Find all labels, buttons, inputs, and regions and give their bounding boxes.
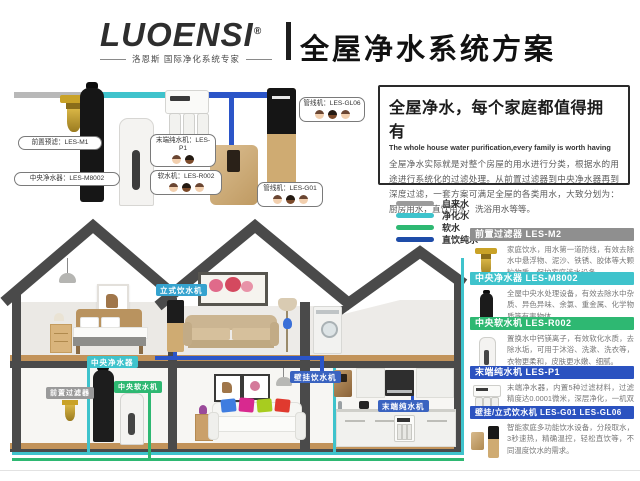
bed-blanket — [73, 337, 146, 346]
purified-pipe-utility — [87, 366, 90, 452]
badge-wall-dispenser: 壁挂饮水机 — [290, 371, 341, 383]
flower-painting — [198, 272, 268, 306]
flower — [209, 279, 223, 292]
bed-leg — [76, 346, 80, 354]
kitchen-cabinet-upper — [356, 368, 385, 398]
badge-central-purifier: 中央净水器 — [87, 356, 138, 368]
washing-machine — [313, 306, 342, 354]
badge-pre-filter: 前置过滤器 — [46, 387, 94, 399]
mid-floor-beam — [10, 361, 462, 368]
vase-flowers — [199, 405, 207, 414]
sofa-arm — [270, 322, 279, 346]
ro-panel — [397, 418, 410, 422]
kitchen-cabinet-upper — [416, 368, 454, 398]
nightstand — [50, 324, 72, 353]
bed-pillow — [101, 317, 120, 328]
flower-picture-small — [242, 374, 270, 400]
drawer-line — [54, 341, 68, 342]
drawer-handle — [427, 420, 447, 422]
washer-door — [321, 321, 338, 338]
drawer-handle — [345, 420, 365, 422]
drawer-handle — [375, 420, 395, 422]
badge-text: 壁挂饮水机 — [294, 372, 337, 383]
soft-pipe-bottom — [12, 458, 464, 461]
deer-picture-small — [214, 374, 242, 402]
washer-panel — [316, 310, 339, 314]
badge-text: 中央净水器 — [91, 357, 134, 368]
faucet — [338, 401, 342, 409]
kettle — [359, 401, 369, 409]
ground-beam — [10, 449, 462, 452]
softener-tank-house — [120, 393, 144, 445]
badge-text: 前置过滤器 — [50, 388, 90, 398]
badge-end-purifier: 末端纯水机 — [378, 400, 429, 412]
flower — [225, 277, 241, 292]
ro-canister — [407, 424, 412, 440]
hood-strip — [387, 390, 412, 393]
sofa-arm — [183, 322, 192, 346]
badge-text: 末端纯水机 — [382, 401, 425, 412]
deer-sketch — [222, 382, 232, 393]
central-purifier-tank-house — [93, 370, 114, 442]
sofa-cushion — [232, 328, 274, 340]
drawer-line — [54, 333, 68, 334]
bed-leg — [139, 346, 143, 354]
prefilter-bowl-house — [65, 405, 75, 421]
bed-pillow — [80, 317, 99, 328]
flower — [241, 281, 253, 292]
badge-standing-dispenser: 立式饮水机 — [156, 284, 207, 296]
pendant-lamp — [59, 273, 76, 283]
pillow-magenta — [238, 397, 254, 412]
soft-pipe-utility — [148, 392, 151, 459]
pillow-red — [274, 398, 290, 412]
range-hood — [385, 370, 414, 396]
badge-central-softener: 中央软水机 — [114, 381, 162, 393]
pendant-cord — [67, 258, 68, 274]
sofa-cushion — [188, 328, 230, 340]
sofa-arm-white — [295, 412, 306, 440]
purified-pipe-right — [461, 258, 464, 455]
softener-window-house — [128, 413, 135, 435]
flower — [250, 381, 260, 391]
sofa-seat-white — [210, 416, 304, 432]
undersink-ro-unit — [394, 415, 415, 442]
purified-pipe-bottom — [12, 452, 464, 455]
badge-text: 中央软水机 — [118, 382, 158, 392]
lamp-blue-ornament — [283, 318, 292, 329]
table-lamp — [54, 313, 64, 321]
outer-wall-left — [12, 294, 21, 449]
pillow-green — [256, 398, 272, 412]
dispenser-screen — [167, 300, 184, 323]
badge-text: 立式饮水机 — [160, 285, 203, 296]
sofa-arm-white — [208, 412, 219, 440]
floor-lamp-shade — [278, 298, 297, 311]
deer-sketch — [106, 294, 118, 308]
pure-pipe-floor — [155, 356, 323, 360]
pillow-blue — [220, 398, 236, 412]
sofa-base — [188, 340, 274, 348]
poster: LUOENSI® 洛恩斯 国际净化系统专家 全屋净水系统方案 全屋净水，每个家庭… — [0, 0, 640, 481]
standing-dispenser-house — [167, 300, 184, 352]
